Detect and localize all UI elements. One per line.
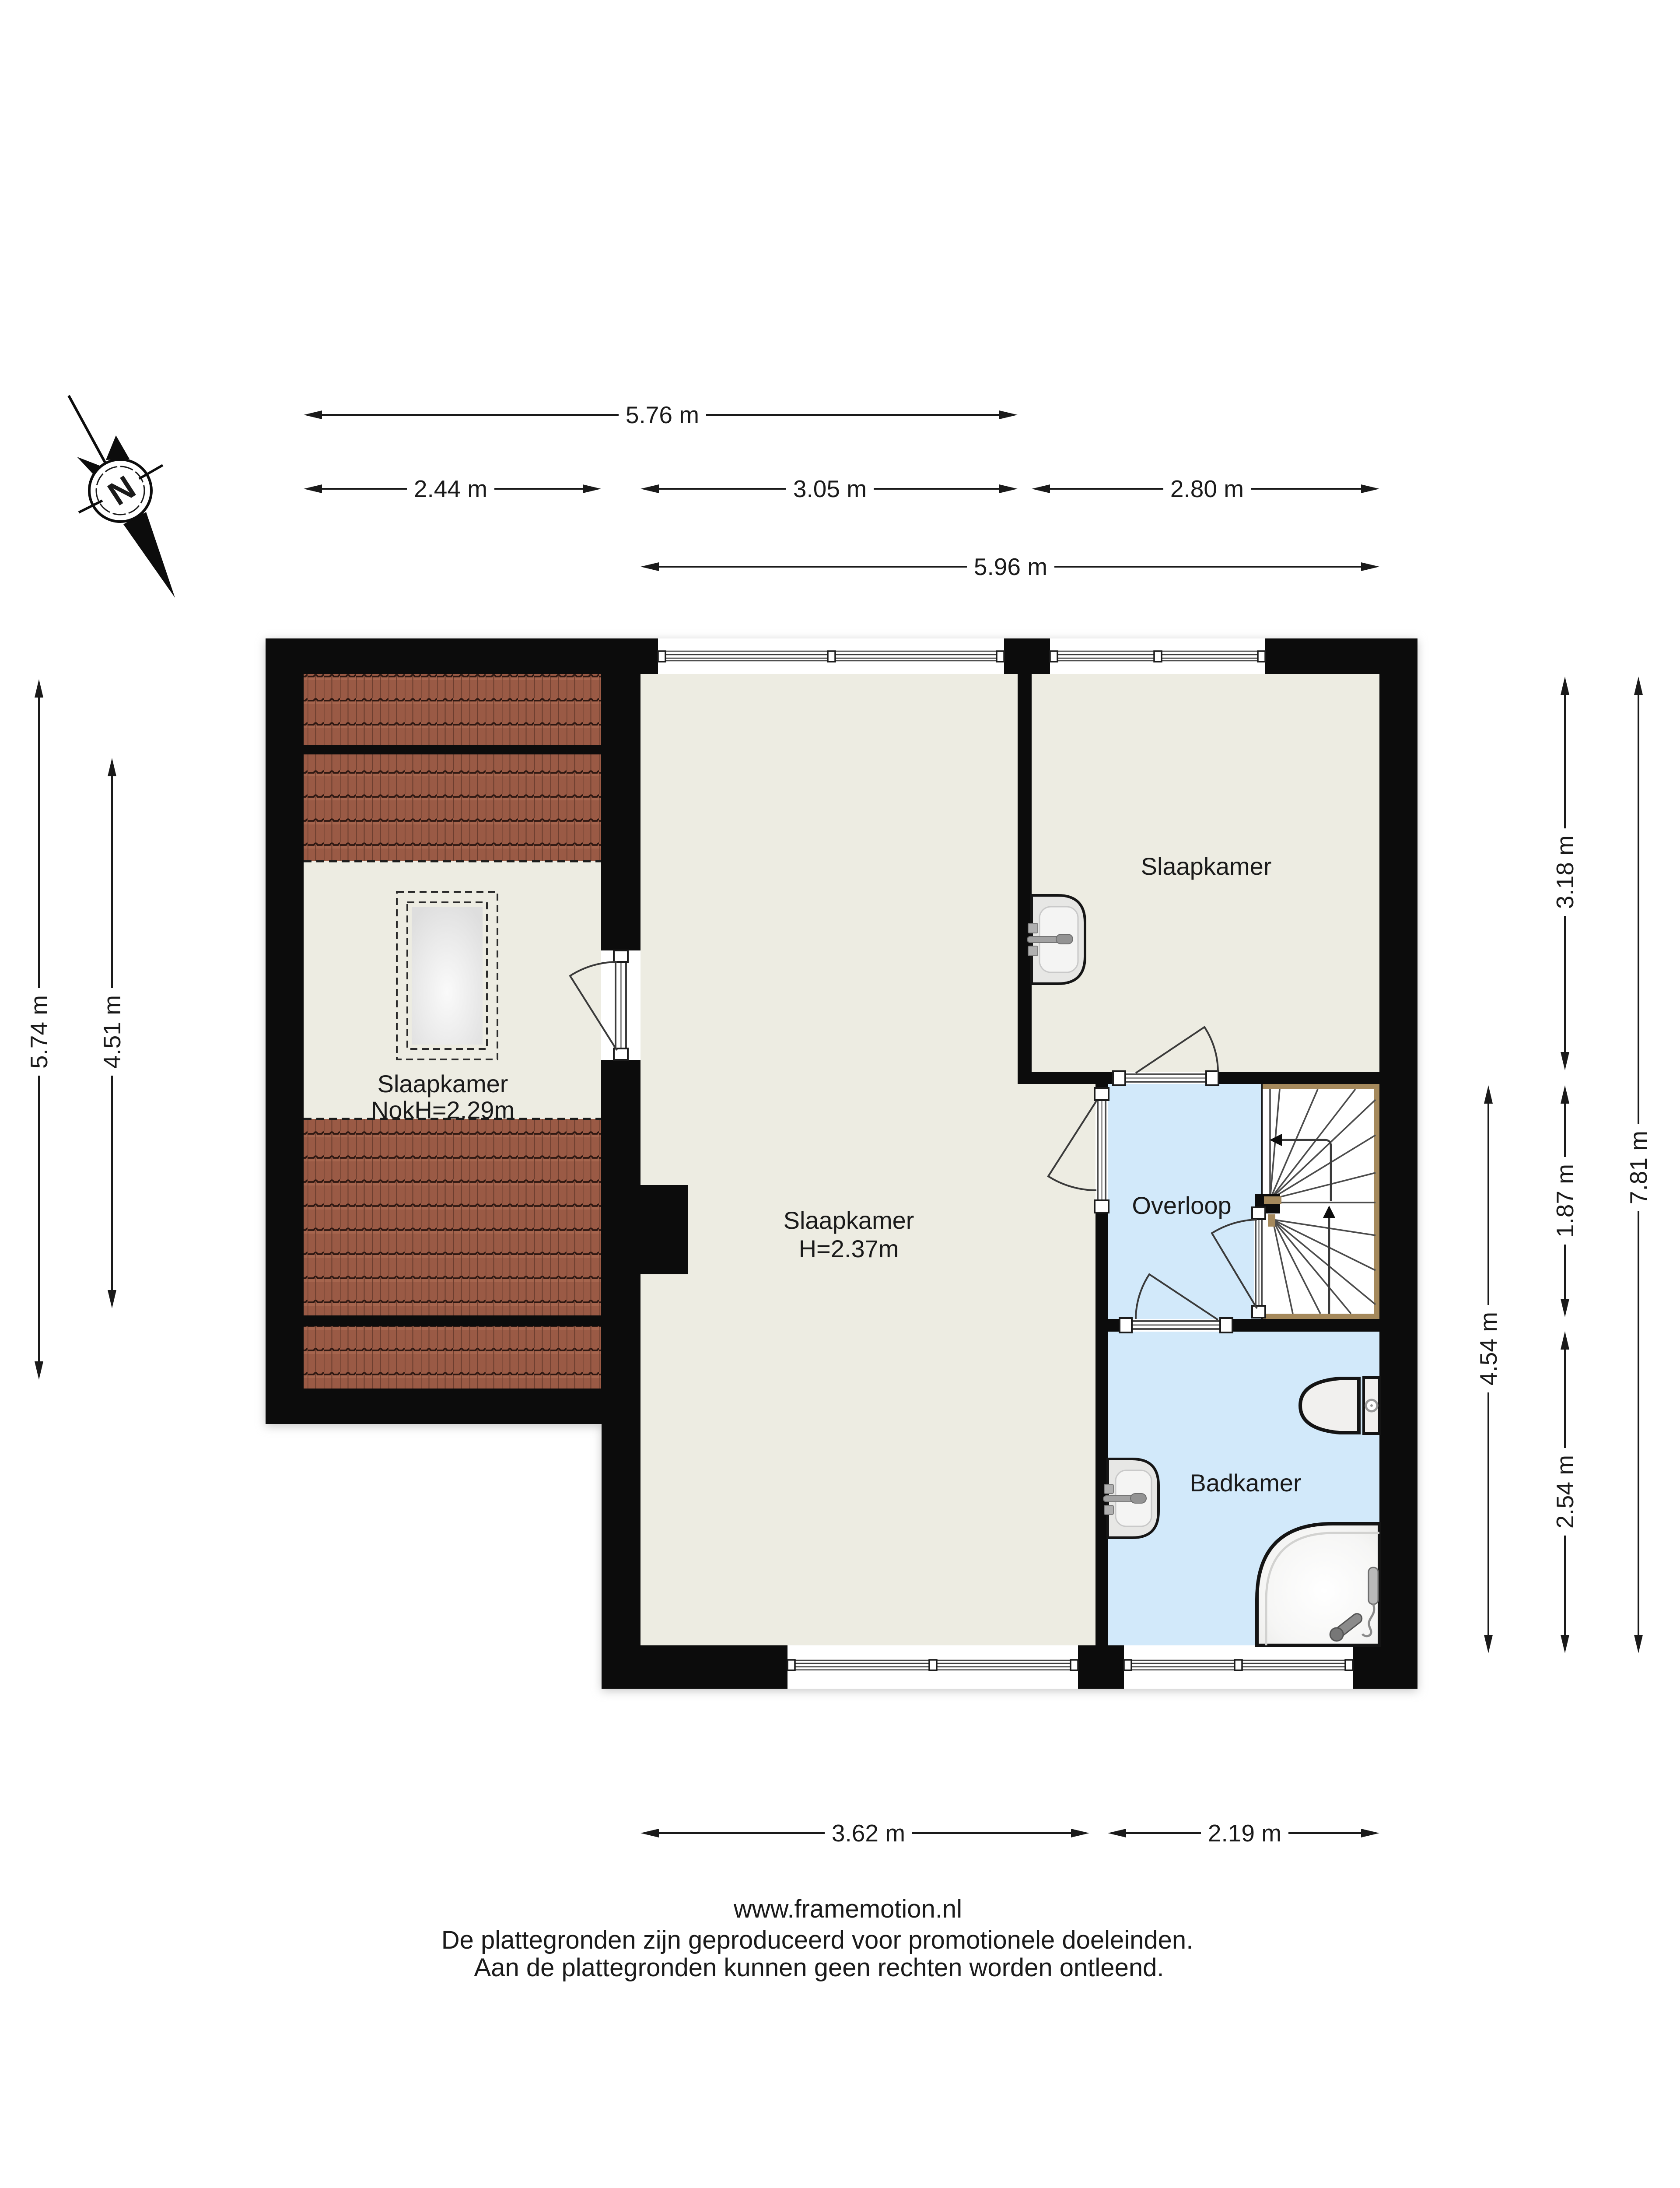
svg-text:5.74 m: 5.74 m (25, 995, 52, 1069)
svg-text:H=2.37m: H=2.37m (799, 1235, 899, 1262)
svg-text:Slaapkamer: Slaapkamer (784, 1206, 914, 1234)
svg-text:3.18 m: 3.18 m (1551, 835, 1578, 909)
svg-text:Overloop: Overloop (1132, 1192, 1231, 1219)
svg-text:2.19 m: 2.19 m (1208, 1820, 1281, 1847)
svg-text:Slaapkamer: Slaapkamer (378, 1070, 508, 1098)
svg-text:www.framemotion.nl: www.framemotion.nl (733, 1895, 962, 1923)
svg-text:2.44 m: 2.44 m (414, 475, 487, 502)
svg-text:5.76 m: 5.76 m (626, 401, 699, 428)
svg-text:3.05 m: 3.05 m (793, 475, 867, 502)
svg-text:3.62 m: 3.62 m (832, 1820, 905, 1847)
svg-text:Badkamer: Badkamer (1190, 1469, 1301, 1497)
svg-text:De plattegronden zijn geproduc: De plattegronden zijn geproduceerd voor … (441, 1926, 1193, 1954)
svg-text:5.96 m: 5.96 m (974, 553, 1047, 580)
svg-text:Aan de plattegronden kunnen ge: Aan de plattegronden kunnen geen rechten… (474, 1953, 1164, 1982)
svg-text:2.80 m: 2.80 m (1170, 475, 1244, 502)
svg-text:4.51 m: 4.51 m (98, 995, 126, 1069)
svg-text:7.81 m: 7.81 m (1625, 1131, 1652, 1204)
svg-text:1.87 m: 1.87 m (1551, 1164, 1578, 1238)
svg-text:Slaapkamer: Slaapkamer (1141, 852, 1272, 880)
svg-text:NokH=2.29m: NokH=2.29m (371, 1096, 514, 1124)
svg-text:4.54 m: 4.54 m (1475, 1312, 1502, 1385)
svg-text:2.54 m: 2.54 m (1551, 1455, 1578, 1529)
